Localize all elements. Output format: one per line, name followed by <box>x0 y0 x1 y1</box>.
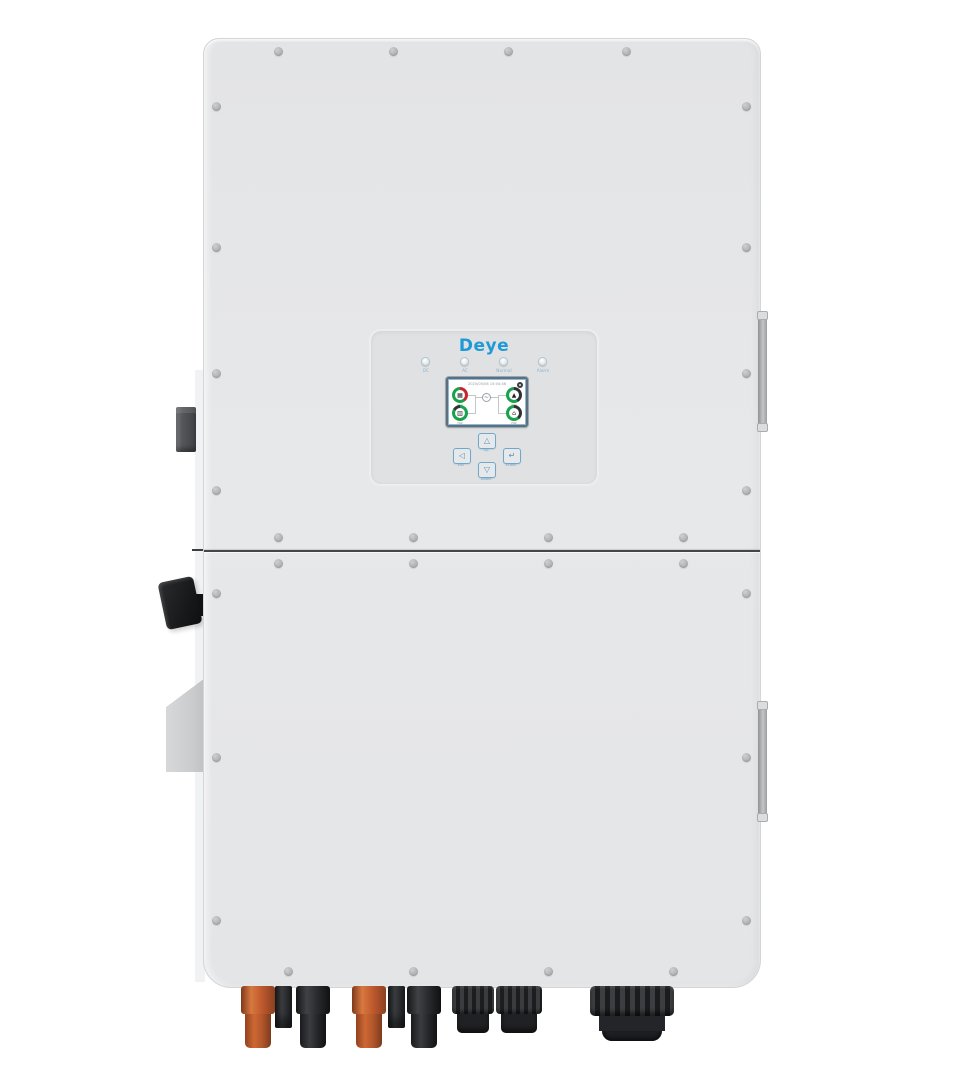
cable-gland-1 <box>452 986 494 1033</box>
control-panel: Deye DC AC Normal Alarm <box>369 329 599 486</box>
pv-gauge: ▦ 0W <box>452 387 468 403</box>
screw <box>544 967 553 976</box>
screw <box>274 559 283 568</box>
led-ac: AC <box>451 357 479 374</box>
screw <box>679 559 688 568</box>
handle-rail-lower <box>758 705 767 818</box>
led-normal-icon <box>499 357 508 366</box>
gland-nut <box>452 986 494 1014</box>
up-arrow-icon: △ <box>484 436 490 445</box>
screw <box>669 967 678 976</box>
screw <box>504 47 513 56</box>
screw <box>212 753 221 762</box>
screw <box>389 47 398 56</box>
mc4-connector-black-1 <box>296 986 330 1048</box>
load-value: 0W <box>508 422 521 426</box>
cable-gland-2 <box>496 986 542 1033</box>
screw <box>742 243 751 252</box>
rail-end-cap <box>757 423 768 432</box>
flow-line <box>498 413 506 414</box>
led-alarm-label: Alarm <box>531 368 555 373</box>
load-gauge: ⌂ 0W <box>506 405 522 421</box>
enter-arrow-icon: ↵ <box>509 451 516 460</box>
screw <box>274 533 283 542</box>
screw <box>409 533 418 542</box>
ac-cable-gland <box>590 986 674 1041</box>
connector-cap <box>352 986 386 1014</box>
gland-tail <box>457 1014 489 1033</box>
screw <box>409 559 418 568</box>
gland-flange <box>602 1031 662 1041</box>
screw <box>622 47 631 56</box>
mc4-connector-orange-2 <box>352 986 386 1048</box>
rail-end-cap <box>757 813 768 822</box>
down-arrow-icon: ▽ <box>484 465 490 474</box>
screw <box>742 369 751 378</box>
led-ac-icon <box>460 357 469 366</box>
pv-icon: ▦ <box>455 390 465 400</box>
led-indicator-row: DC AC Normal Alarm <box>371 357 597 374</box>
screw <box>212 916 221 925</box>
small-connector-black-2 <box>388 986 405 1028</box>
screw <box>212 102 221 111</box>
screw <box>544 559 553 568</box>
screw <box>212 243 221 252</box>
screw <box>742 102 751 111</box>
up-button[interactable]: △ <box>478 433 496 449</box>
screw <box>742 753 751 762</box>
screw <box>274 47 283 56</box>
screw <box>284 967 293 976</box>
flow-line <box>498 395 506 396</box>
lcd-screen: 2020/05/06 15:04:46 ▦ 0W <box>446 377 528 427</box>
screw <box>212 589 221 598</box>
load-home-icon: ⌂ <box>509 408 519 418</box>
down-button-label: Down <box>473 477 499 481</box>
battery-value: 0W <box>454 422 467 426</box>
screw <box>212 486 221 495</box>
connector-stem <box>411 1014 437 1048</box>
led-alarm: Alarm <box>529 357 557 374</box>
esc-button-label: Esc <box>448 463 474 467</box>
grid-tower-icon: ▲ <box>509 390 519 400</box>
small-connector-black-1 <box>275 986 292 1028</box>
lcd-content: 2020/05/06 15:04:46 ▦ 0W <box>448 379 526 425</box>
screw <box>544 533 553 542</box>
enter-button-label: Enter <box>498 463 524 467</box>
enclosure-seam <box>204 550 760 552</box>
screw <box>679 533 688 542</box>
led-ac-label: AC <box>453 368 477 373</box>
led-dc-label: DC <box>414 368 438 373</box>
grid-gauge: ▲ 0W <box>506 387 522 403</box>
connector-stem <box>245 1014 271 1048</box>
esc-arrow-icon: ◁ <box>459 451 465 460</box>
brand-logo: Deye <box>371 336 597 356</box>
down-button[interactable]: ▽ <box>478 462 496 478</box>
up-button-label: Up <box>473 448 499 452</box>
led-normal: Normal <box>490 357 518 374</box>
screw <box>742 486 751 495</box>
screw <box>742 589 751 598</box>
connector-cap <box>296 986 330 1014</box>
screw <box>742 916 751 925</box>
inverter-node-icon: ~ <box>482 393 491 402</box>
flow-line <box>498 395 499 414</box>
gland-nut <box>590 986 674 1016</box>
screw <box>212 369 221 378</box>
screen-datetime: 2020/05/06 15:04:46 <box>453 381 521 386</box>
connector-stem <box>356 1014 382 1048</box>
esc-button[interactable]: ◁ <box>453 448 471 464</box>
led-dc: DC <box>412 357 440 374</box>
left-side-bracket <box>166 678 205 772</box>
left-side-port <box>176 407 196 452</box>
mc4-connector-orange-1 <box>241 986 275 1048</box>
led-dc-icon <box>421 357 430 366</box>
inverter-product-photo: Deye DC AC Normal Alarm <box>0 0 970 1080</box>
battery-gauge: ▥ 0W <box>452 405 468 421</box>
connector-cap <box>241 986 275 1014</box>
connector-stem <box>300 1014 326 1048</box>
led-alarm-icon <box>538 357 547 366</box>
gland-body <box>599 1016 665 1031</box>
rail-end-cap <box>757 311 768 320</box>
enter-button[interactable]: ↵ <box>503 448 521 464</box>
gland-tail <box>501 1014 537 1033</box>
handle-rail-upper <box>758 315 767 428</box>
led-normal-label: Normal <box>492 368 516 373</box>
connector-cap <box>407 986 441 1014</box>
inverter-body: Deye DC AC Normal Alarm <box>203 38 761 988</box>
screw <box>409 967 418 976</box>
gland-nut <box>496 986 542 1014</box>
battery-icon: ▥ <box>455 408 465 418</box>
mc4-connector-black-2 <box>407 986 441 1048</box>
rail-end-cap <box>757 701 768 710</box>
